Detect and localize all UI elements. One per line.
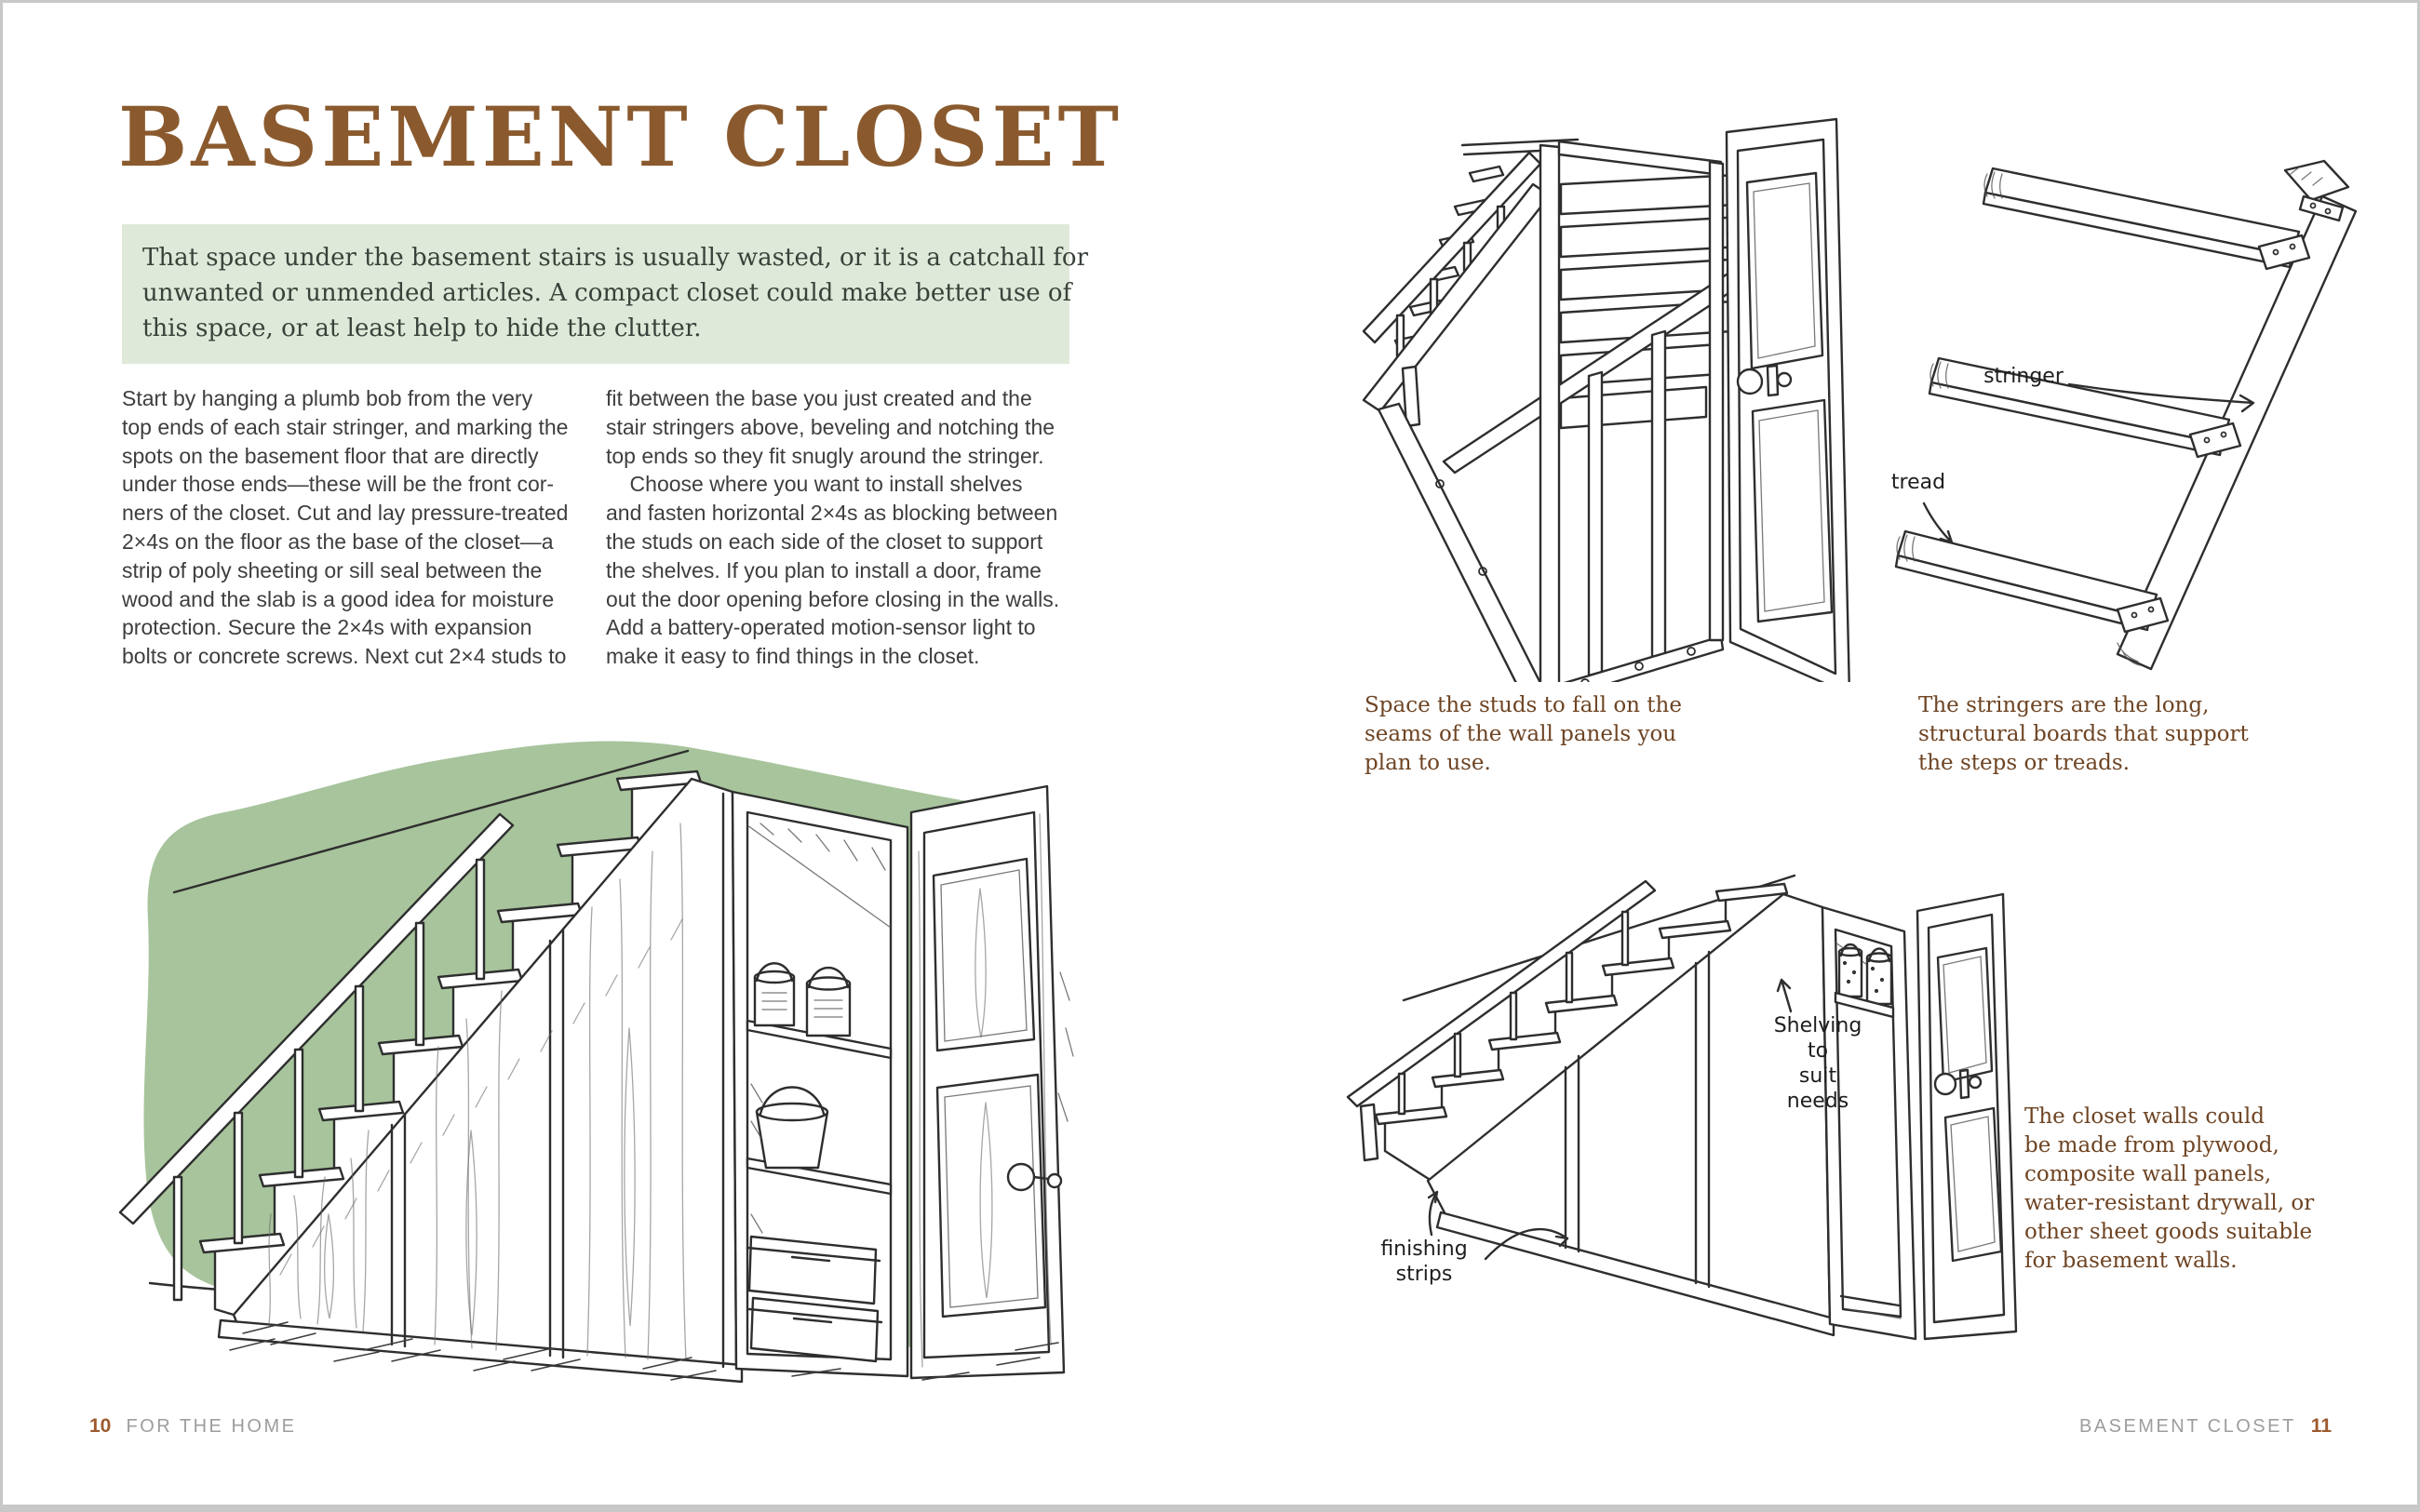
footer-left: 10 FOR THE HOME [89, 1415, 296, 1438]
caption-studs: Space the studs to fall on the seams of … [1365, 691, 1682, 778]
caption-closet-walls: The closet walls could be made from plyw… [2024, 1103, 2314, 1276]
stringer-label: stringer [1972, 364, 2075, 389]
body-column-1: Start by hanging a plumb bob from the ve… [122, 384, 568, 671]
page-number-right: 11 [2311, 1415, 2332, 1437]
stud-framing-illustration [1351, 91, 1876, 682]
footer-right: BASEMENT CLOSET 11 [2079, 1415, 2332, 1438]
book-spread: BASEMENT CLOSET That space under the bas… [0, 0, 2420, 1512]
finishing-strips-label: finishing strips [1359, 1237, 1489, 1287]
door-knob [1935, 1074, 1956, 1094]
footer-section-left: FOR THE HOME [126, 1416, 296, 1437]
body-column-2: fit between the base you just created an… [606, 384, 1059, 671]
caption-stringers: The stringers are the long, structural b… [1918, 691, 2249, 778]
closet-walls-illustration: Shelving to suit needs finishing strips [1346, 822, 2021, 1347]
intro-text: That space under the basement stairs is … [142, 240, 1049, 346]
main-closet-illustration [85, 693, 1082, 1384]
tread-label: tread [1883, 470, 1954, 495]
page-number-left: 10 [89, 1415, 111, 1437]
page-title: BASEMENT CLOSET [118, 96, 1123, 178]
door-knob [1738, 369, 1762, 394]
shelving-label: Shelving to suit needs [1767, 1013, 1869, 1114]
intro-highlight-box: That space under the basement stairs is … [122, 224, 1069, 364]
stringer-detail-illustration: stringer tread [1883, 142, 2372, 677]
door-knob [1008, 1164, 1034, 1190]
footer-section-right: BASEMENT CLOSET [2079, 1416, 2296, 1437]
